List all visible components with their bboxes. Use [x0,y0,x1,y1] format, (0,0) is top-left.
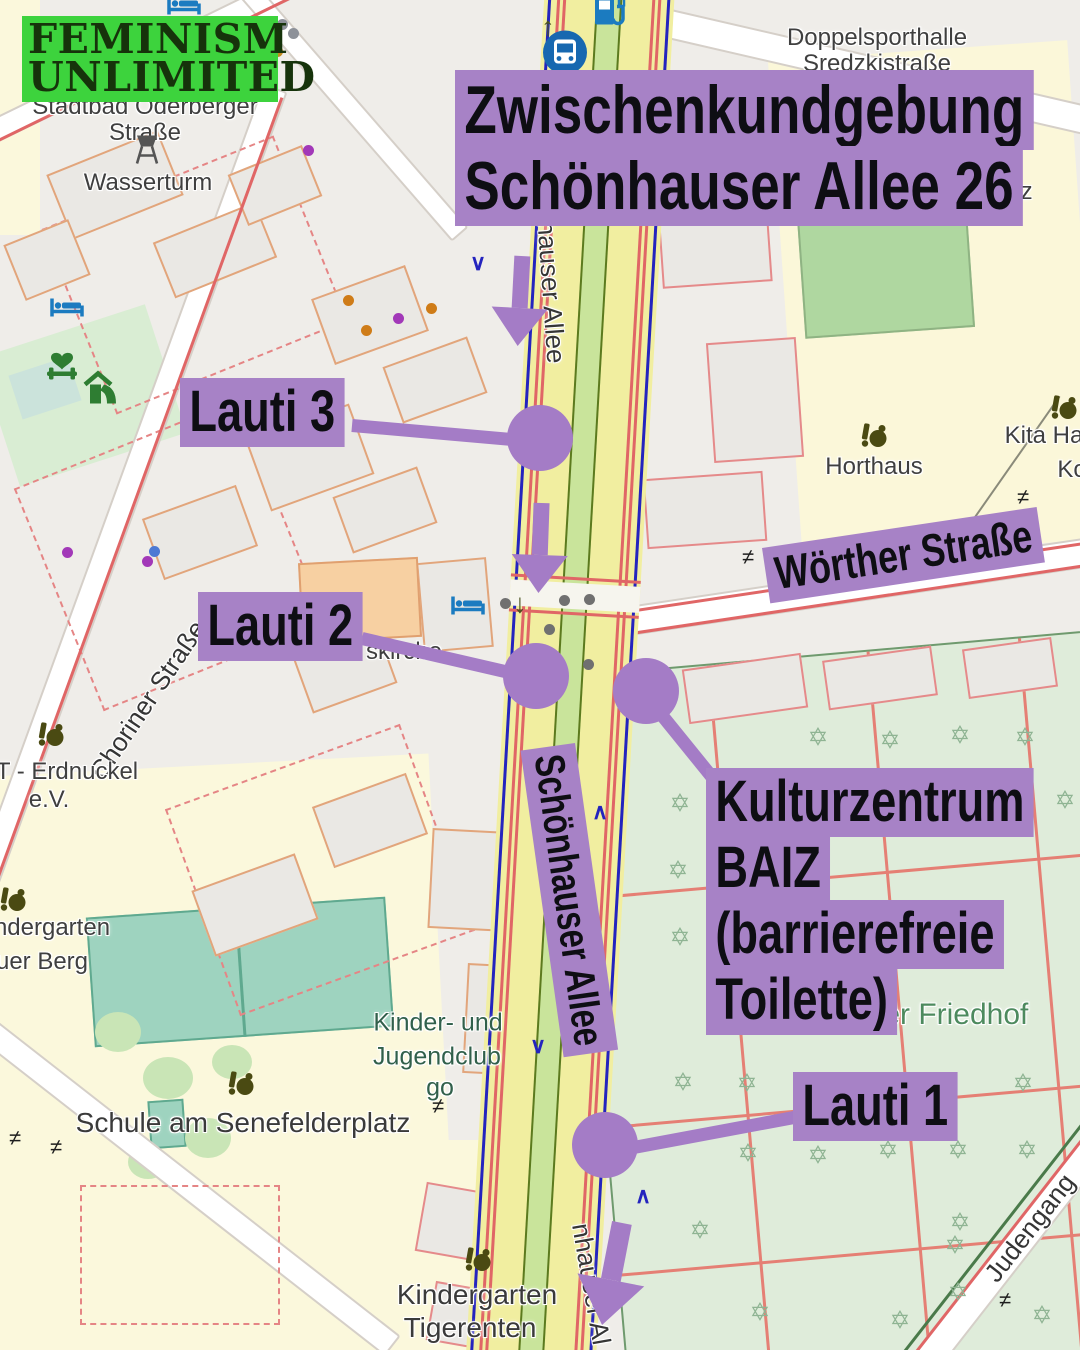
poi-dot [303,145,314,156]
map-poster: FEMINISM UNLIMITED Zwischenkundgebung Sc… [0,0,1080,1350]
baiz-label-line2: BAIZ [706,834,830,903]
map-label: e.V. [29,786,70,814]
map-label: Schule am Senefelderplatz [76,1107,411,1139]
building [382,336,487,423]
baiz-label-line3: (barrierefreie [706,900,1004,969]
building [643,471,768,549]
playground-icon [81,370,119,411]
bed-icon [50,297,84,324]
star-of-david-icon: ✡ [673,1068,694,1097]
poi-dot [584,594,595,605]
headline-line2: Schönhauser Allee 26 [455,146,1023,226]
arrow-head [490,307,548,348]
map-label: Kindergarten [397,1279,557,1311]
star-of-david-icon: ✡ [690,1216,711,1245]
lauti2-label: Lauti 2 [198,592,363,661]
baiz-label-line4: Toilette) [706,966,897,1035]
star-of-david-icon: ✡ [750,1298,771,1327]
gate-symbol: ≠ [1017,484,1029,510]
route-arrow-down-2 [510,502,569,594]
poi-dot [62,547,73,558]
star-of-david-icon: ✡ [738,1139,759,1168]
map-label: Ko [1057,456,1080,484]
star-of-david-icon: ✡ [1055,786,1076,815]
star-of-david-icon: ✡ [890,1306,911,1335]
star-of-david-icon: ✡ [668,856,689,885]
poi-dot [343,295,354,306]
star-of-david-icon: ✡ [670,789,691,818]
kindergarten-icon [224,1070,256,1103]
map-label: uer Berg [0,948,88,976]
kindergarten-icon [857,422,889,455]
watertower-icon [133,134,161,171]
oneway-arrow-icon: ↓ [513,589,527,620]
gate-symbol: ≠ [50,1134,62,1160]
star-of-david-icon: ✡ [808,1141,829,1170]
star-of-david-icon: ✡ [808,723,829,752]
star-of-david-icon: ✡ [1017,1136,1038,1165]
logo-line2: UNLIMITED [28,58,272,96]
building [706,337,804,463]
arrow-shaft [601,1221,632,1282]
poi-dot [149,546,160,557]
poi-dot [393,313,404,324]
poi-dot [426,303,437,314]
cycleway-arrow-icon: ∨ [530,1033,546,1059]
star-of-david-icon: ✡ [670,923,691,952]
map-label: Jugendclub [373,1043,501,1072]
star-of-david-icon: ✡ [950,721,971,750]
route-arrow-down-1 [490,255,551,348]
poi-dot [544,624,555,635]
poi-dot [559,595,570,606]
map-label: Horthaus [825,453,922,481]
fitness-icon [44,345,80,386]
map-label: Doppelsporthalle [787,24,967,52]
arrow-shaft [512,256,531,309]
star-of-david-icon: ✡ [737,1069,758,1098]
baiz-marker-circle [613,658,679,724]
star-of-david-icon: ✡ [1015,723,1036,752]
poi-dot [361,325,372,336]
star-of-david-icon: ✡ [1013,1069,1034,1098]
map-label: Wasserturm [84,169,212,197]
cemetery-path [587,848,1080,899]
map-label: Kinder- und [373,1009,502,1038]
star-of-david-icon: ✡ [880,726,901,755]
lauti3-marker-circle [507,405,573,471]
arrow-shaft [532,503,550,556]
lauti1-label: Lauti 1 [793,1072,958,1141]
cycleway-arrow-icon: ∧ [592,799,608,825]
block-outline [80,1185,280,1325]
arrow-head [510,554,567,594]
gate-symbol: ≠ [742,544,754,570]
headline-line1: Zwischenkundgebung [455,70,1034,150]
bed-icon [451,595,485,622]
star-of-david-icon: ✡ [950,1208,971,1237]
cycleway-arrow-icon: ∧ [635,1183,651,1209]
lauti3-label: Lauti 3 [180,378,345,447]
poi-dot [288,28,299,39]
map-label: T - Erdnuckel [0,758,138,786]
kindergarten-icon [34,721,66,754]
star-of-david-icon: ✡ [948,1278,969,1307]
kindergarten-icon [0,886,28,919]
gate-symbol: ≠ [432,1093,444,1119]
lauti2-marker-circle [503,643,569,709]
lauti1-marker-circle [572,1112,638,1178]
map-label: Tigerenten [404,1312,537,1344]
baiz-label-line1: Kulturzentrum [706,768,1034,837]
poi-dot [142,556,153,567]
ev-icon [593,0,627,40]
kindergarten-icon [1047,394,1079,427]
star-of-david-icon: ✡ [1032,1301,1053,1330]
feminism-unlimited-logo: FEMINISM UNLIMITED [22,16,278,102]
kindergarten-icon [461,1246,493,1279]
cycleway-arrow-icon: ∨ [470,250,486,276]
gate-symbol: ≠ [999,1287,1011,1313]
poi-dot [500,598,511,609]
poi-dot [583,659,594,670]
gate-symbol: ≠ [9,1125,21,1151]
